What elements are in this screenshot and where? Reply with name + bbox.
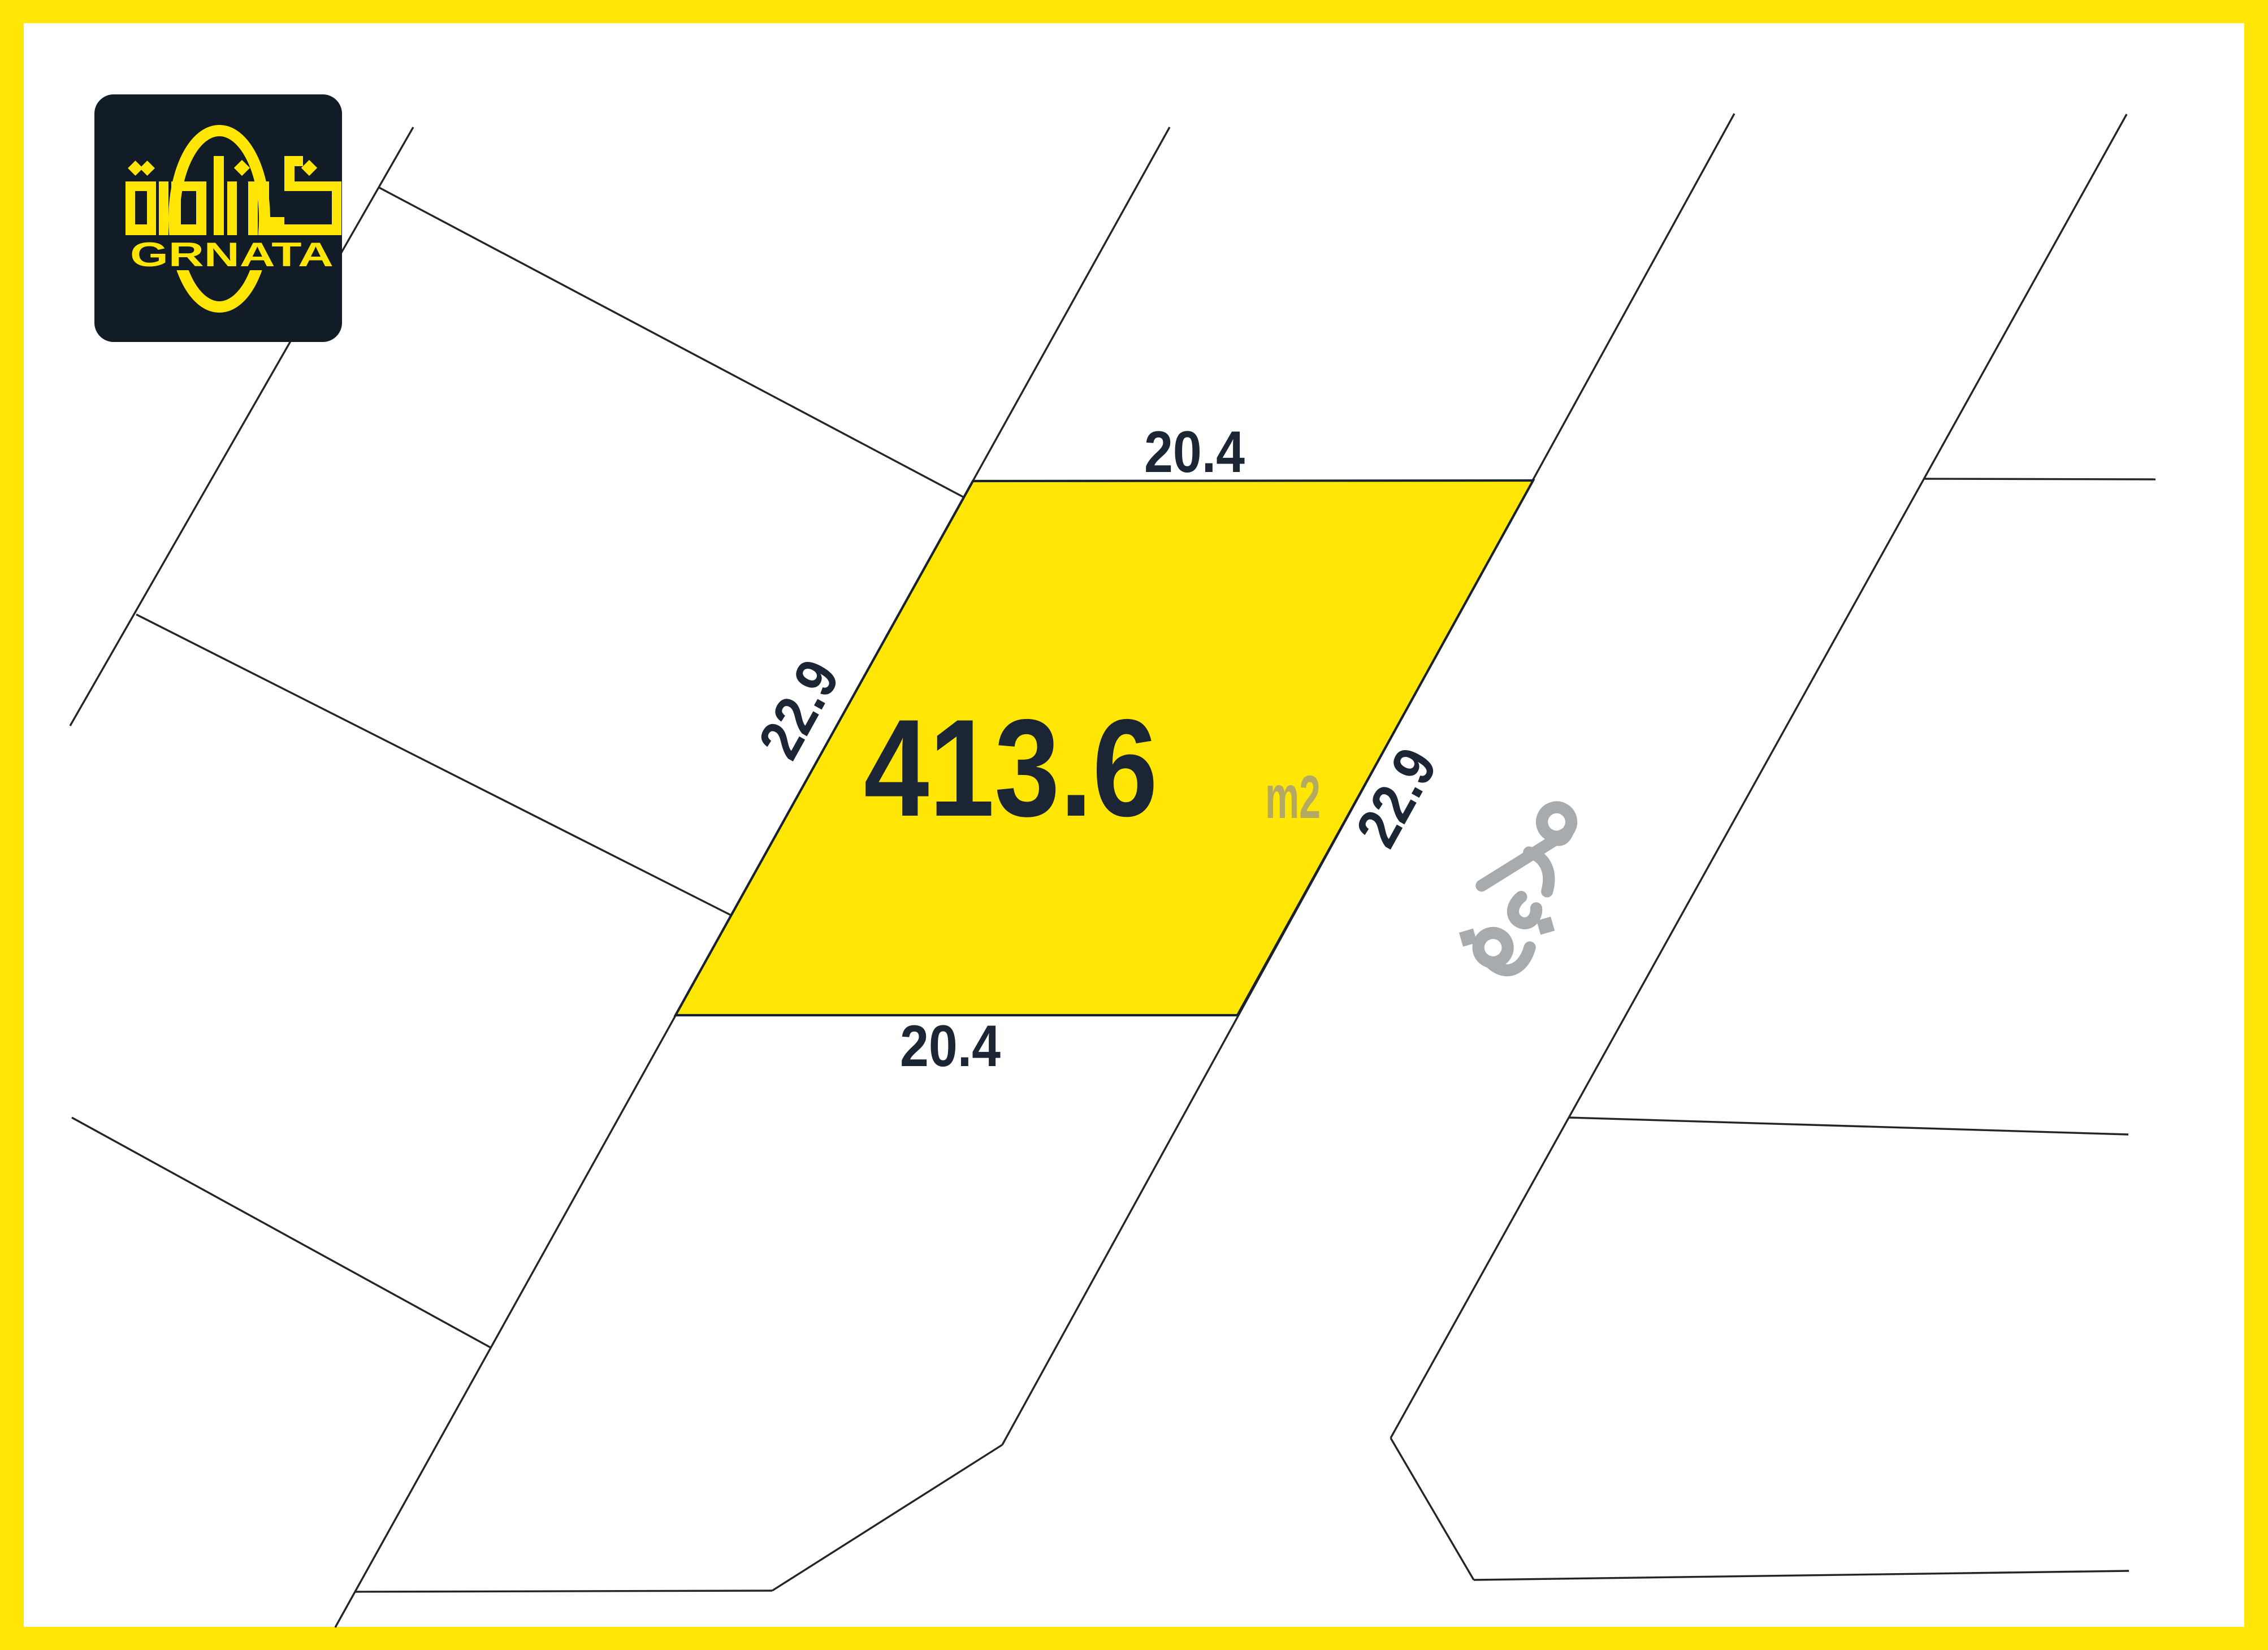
svg-text:413.6: 413.6 — [864, 690, 1158, 845]
svg-text:GRNATA: GRNATA — [130, 236, 334, 274]
svg-text:m2: m2 — [1265, 763, 1321, 831]
svg-text:20.4: 20.4 — [1144, 419, 1245, 485]
svg-text:20.4: 20.4 — [900, 1014, 1001, 1079]
